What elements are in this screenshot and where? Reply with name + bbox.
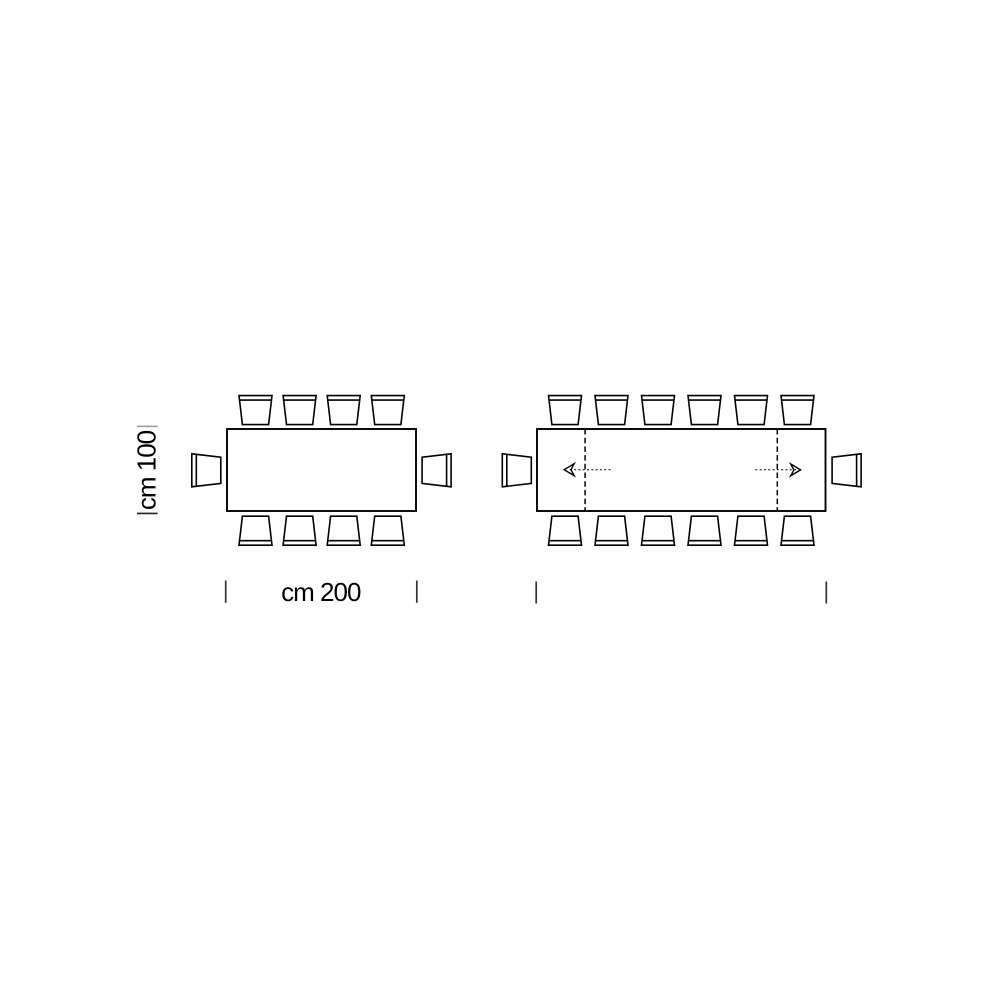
svg-text:cm 200: cm 200 xyxy=(281,577,361,607)
svg-text:cm 100: cm 100 xyxy=(131,430,161,510)
